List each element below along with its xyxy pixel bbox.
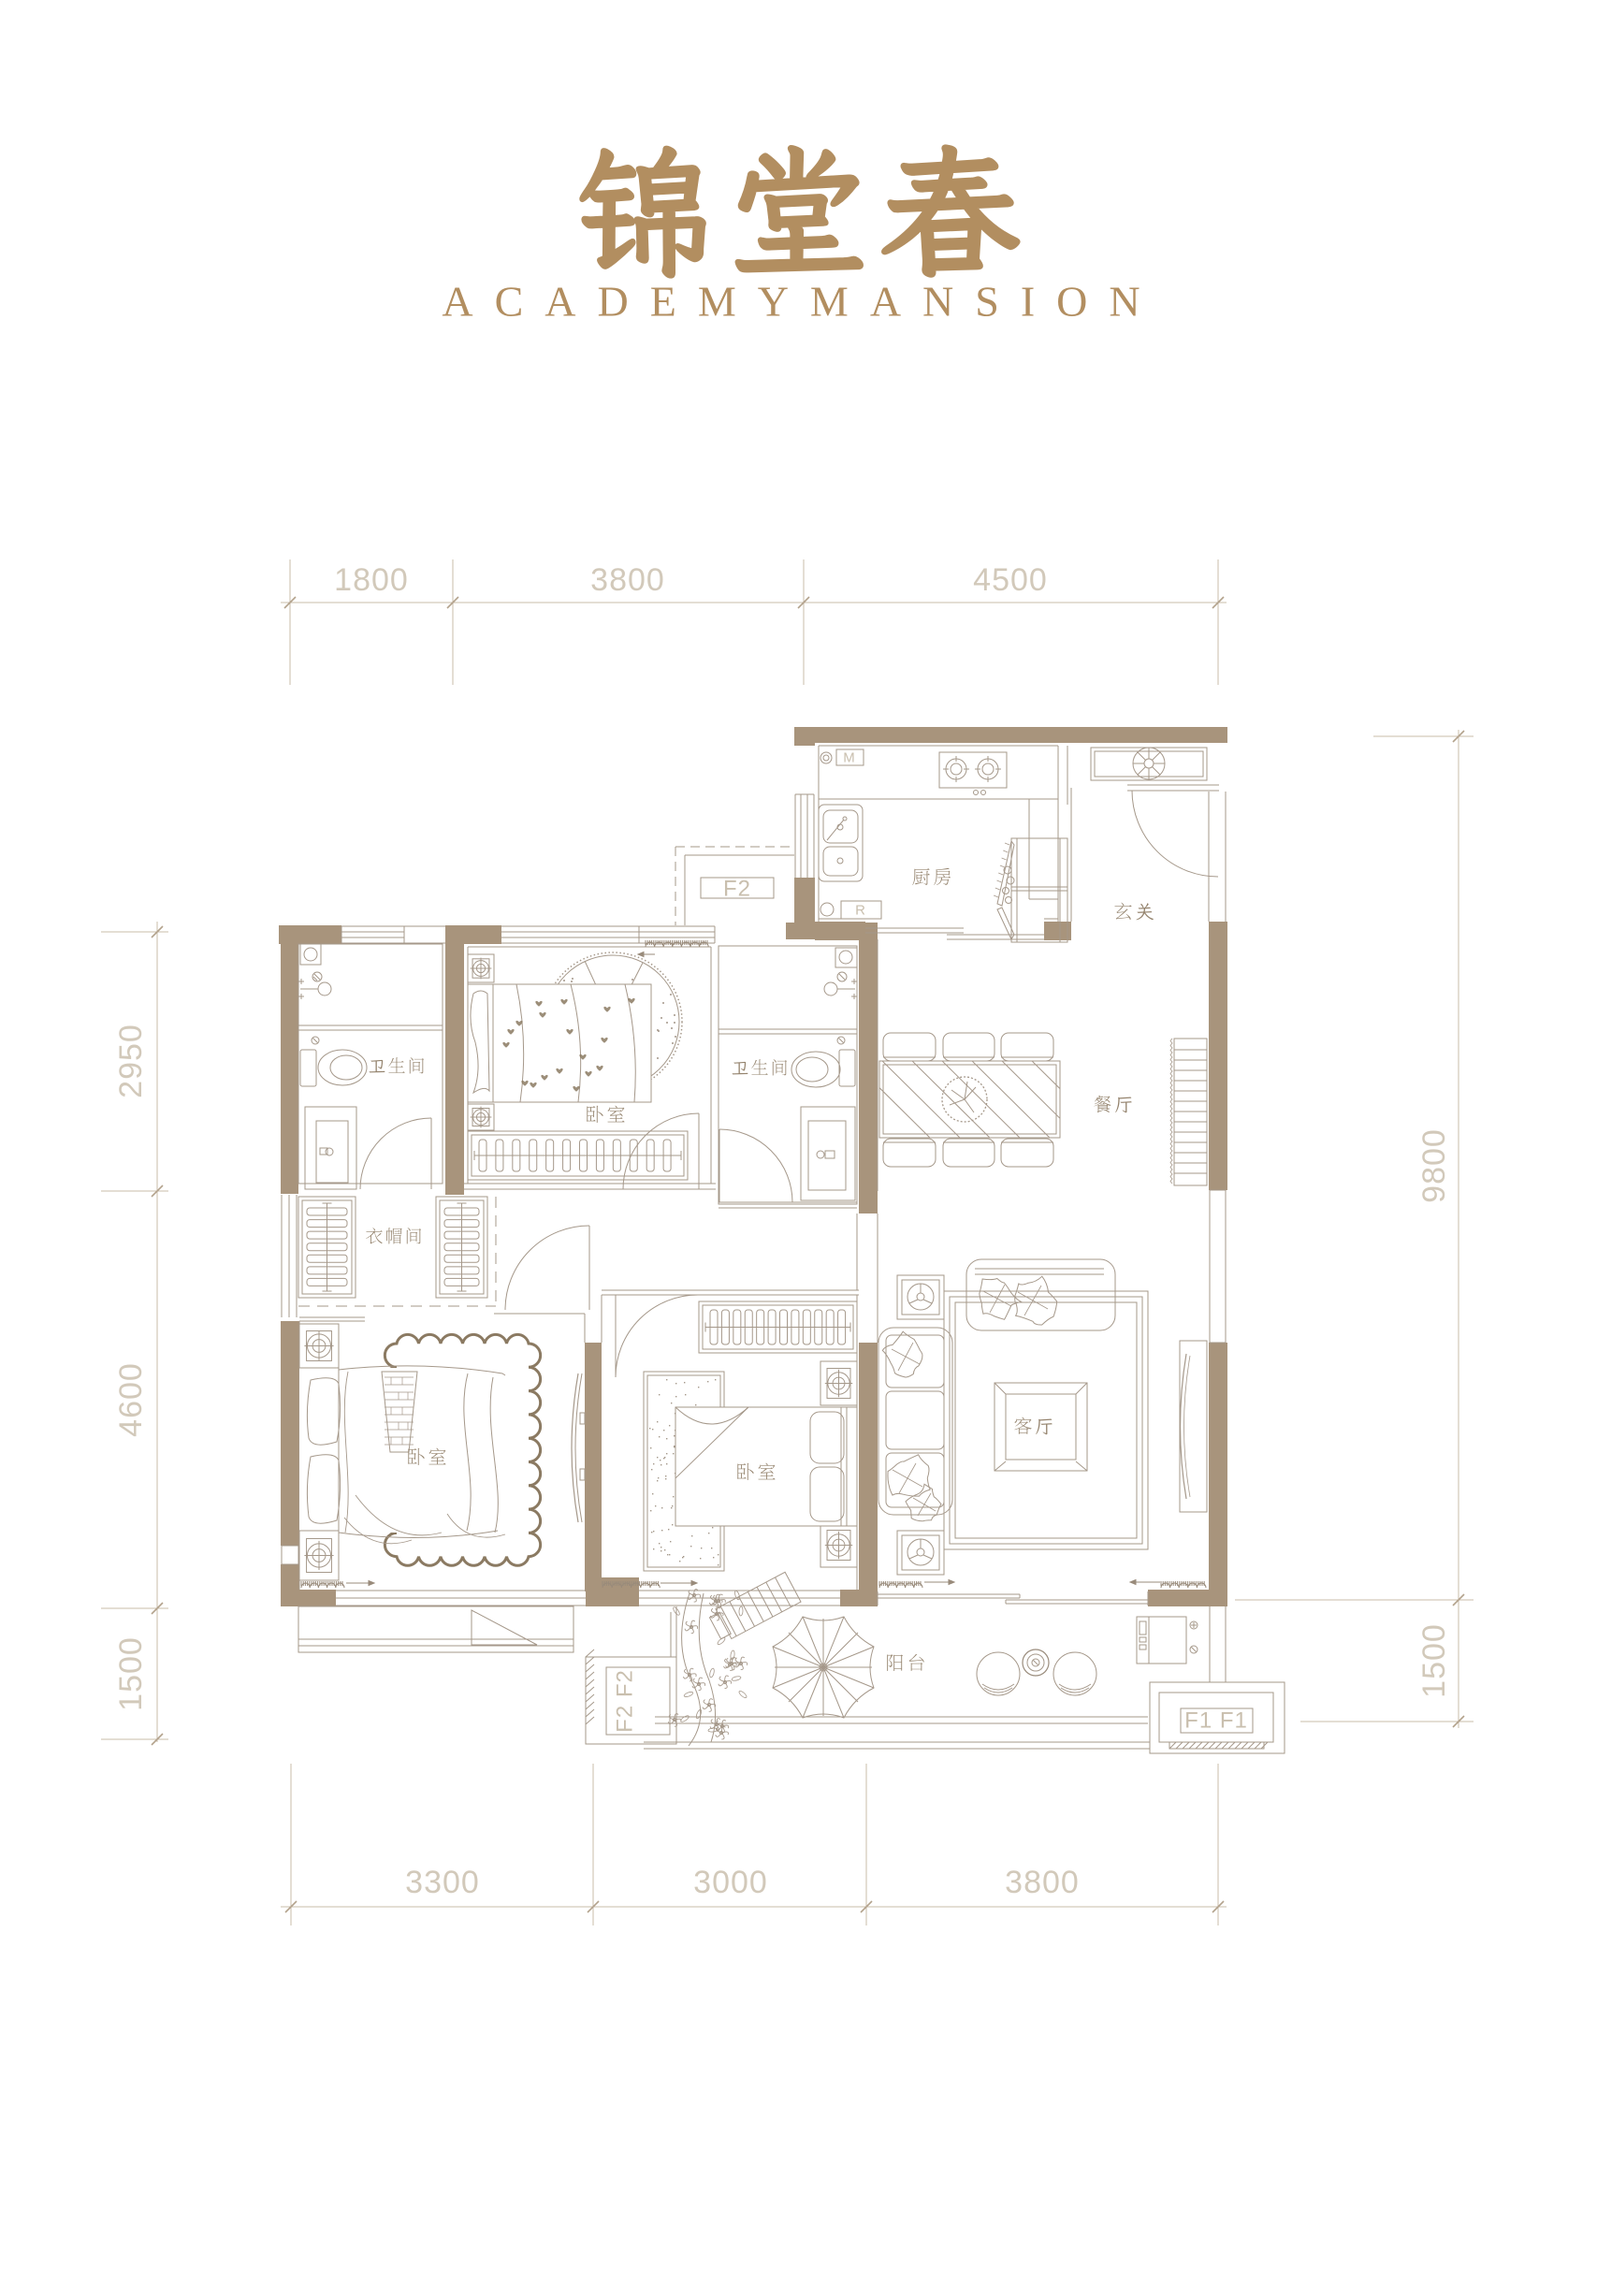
svg-text:2950: 2950	[113, 1024, 149, 1098]
svg-text:3000: 3000	[693, 1865, 768, 1900]
svg-text:3300: 3300	[405, 1865, 480, 1900]
svg-text:3800: 3800	[1005, 1865, 1080, 1900]
svg-text:3800: 3800	[590, 562, 665, 598]
svg-text:4600: 4600	[113, 1362, 149, 1437]
svg-text:F2: F2	[723, 877, 751, 902]
svg-text:F2 F2: F2 F2	[613, 1669, 638, 1733]
svg-text:1500: 1500	[1416, 1623, 1452, 1698]
svg-text:M: M	[843, 750, 856, 766]
svg-text:F1 F1: F1 F1	[1184, 1708, 1248, 1734]
svg-text:9800: 9800	[1416, 1128, 1452, 1203]
svg-text:R: R	[855, 903, 866, 919]
svg-text:1500: 1500	[113, 1636, 149, 1711]
svg-text:ACADEMYMANSION: ACADEMYMANSION	[442, 278, 1161, 326]
svg-text:1800: 1800	[334, 562, 409, 598]
svg-text:4500: 4500	[973, 562, 1048, 598]
